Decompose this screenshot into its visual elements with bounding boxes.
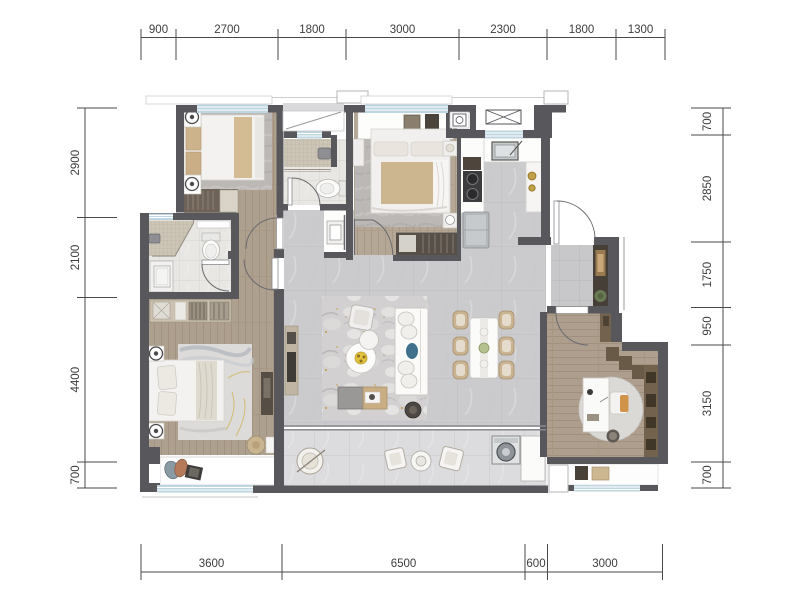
svg-text:700: 700 [702, 112, 714, 131]
svg-text:3600: 3600 [199, 558, 225, 570]
svg-text:1800: 1800 [569, 24, 595, 36]
svg-text:1750: 1750 [702, 262, 714, 288]
svg-text:900: 900 [149, 24, 168, 36]
svg-text:2700: 2700 [214, 24, 240, 36]
svg-text:3150: 3150 [702, 391, 714, 417]
svg-text:700: 700 [70, 465, 82, 484]
svg-text:2900: 2900 [70, 150, 82, 176]
svg-text:950: 950 [702, 316, 714, 335]
svg-text:2300: 2300 [490, 24, 516, 36]
svg-text:2100: 2100 [70, 245, 82, 271]
svg-text:3000: 3000 [592, 558, 618, 570]
svg-text:700: 700 [702, 465, 714, 484]
svg-text:600: 600 [526, 558, 545, 570]
svg-text:1800: 1800 [299, 24, 325, 36]
svg-text:2850: 2850 [702, 176, 714, 202]
svg-text:4400: 4400 [70, 367, 82, 393]
svg-text:3000: 3000 [390, 24, 416, 36]
svg-text:1300: 1300 [628, 24, 654, 36]
svg-text:6500: 6500 [391, 558, 417, 570]
